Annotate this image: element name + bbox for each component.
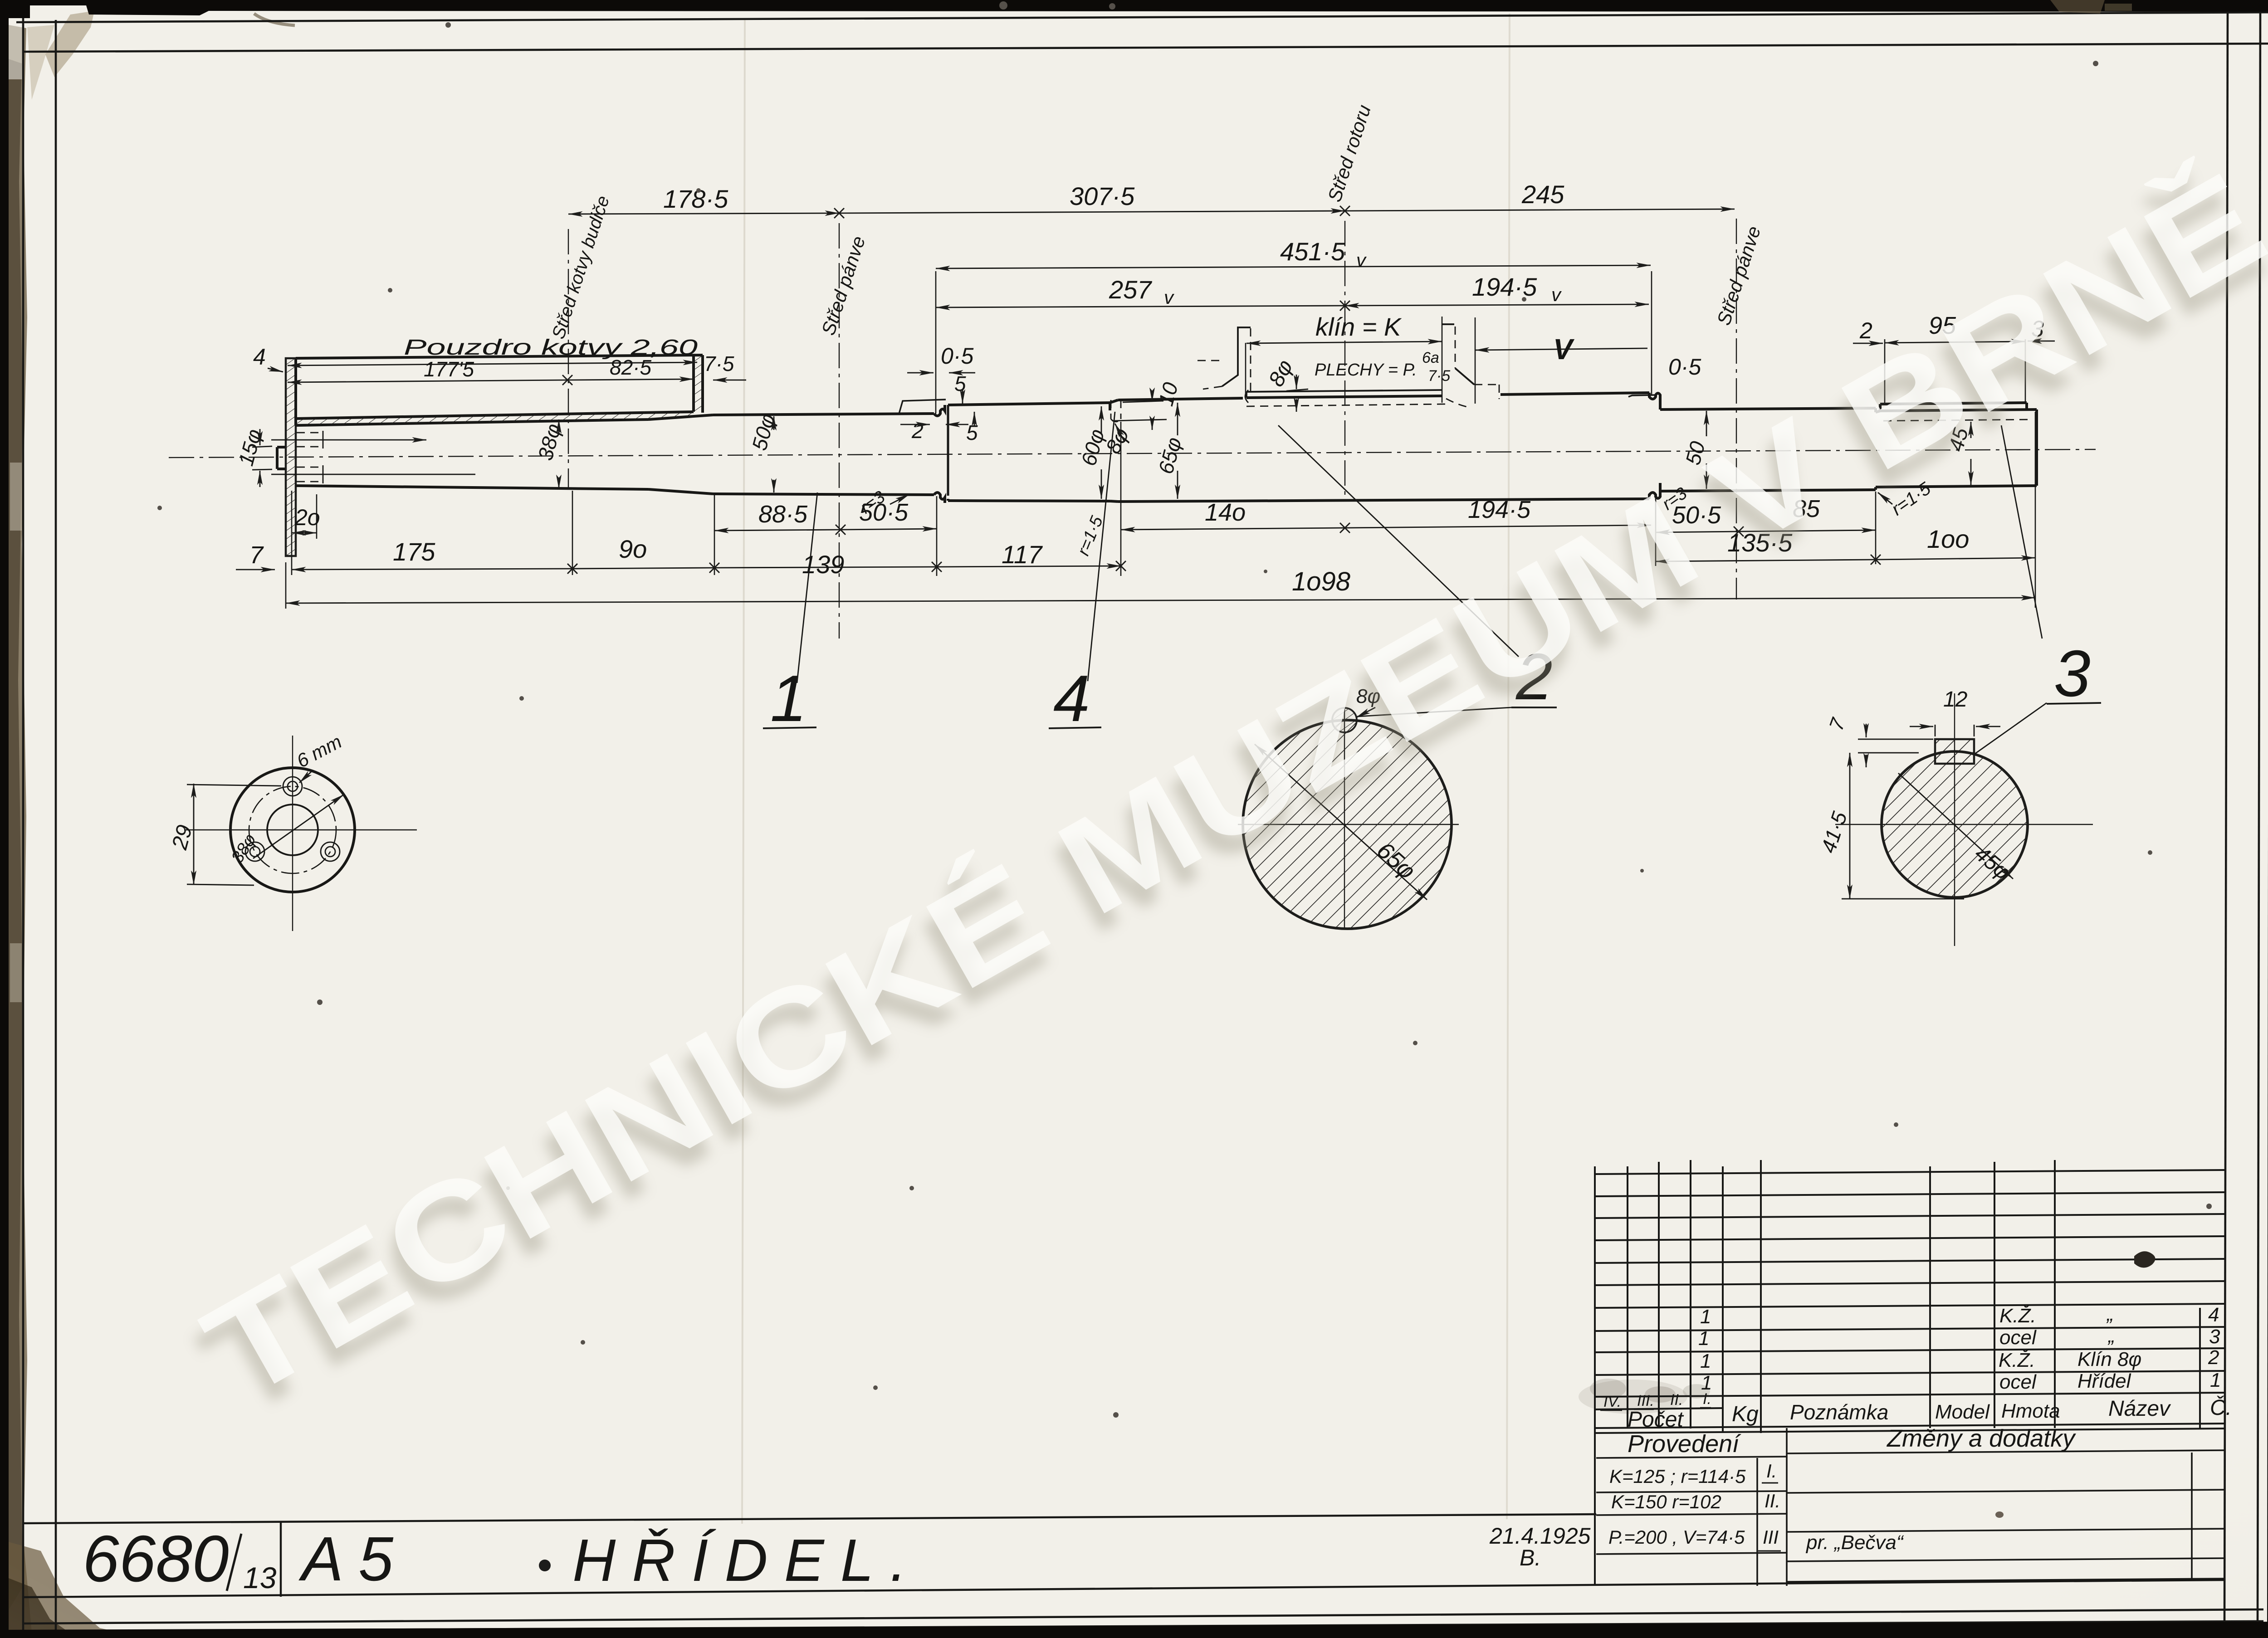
svg-text:Poznámka: Poznámka	[1790, 1400, 1888, 1424]
svg-text:194·5: 194·5	[1468, 496, 1531, 523]
svg-text:Počet: Počet	[1628, 1408, 1684, 1432]
svg-text:I.: I.	[1703, 1390, 1711, 1408]
svg-text:13: 13	[243, 1561, 277, 1594]
svg-text:1: 1	[770, 662, 807, 735]
svg-text:PLECHY = P.: PLECHY = P.	[1315, 361, 1417, 380]
svg-text:82·5: 82·5	[610, 356, 651, 379]
svg-text:1oo: 1oo	[1927, 525, 1969, 553]
svg-text:Klín 8φ: Klín 8φ	[2077, 1348, 2141, 1370]
svg-text:7: 7	[249, 541, 264, 569]
svg-text:6a: 6a	[1422, 349, 1439, 366]
svg-text:177'5: 177'5	[424, 357, 474, 381]
svg-text:194·5: 194·5	[1472, 273, 1537, 301]
svg-text:1: 1	[1700, 1306, 1711, 1328]
svg-text:4: 4	[2208, 1304, 2219, 1326]
svg-text:451·5: 451·5	[1280, 237, 1345, 266]
svg-text:88·5: 88·5	[758, 501, 808, 528]
svg-text:2: 2	[2208, 1346, 2219, 1369]
svg-text:5: 5	[954, 372, 966, 395]
svg-text:„: „	[2107, 1325, 2115, 1347]
svg-text:Hřídel: Hřídel	[2077, 1370, 2131, 1392]
svg-text:ocel: ocel	[1999, 1371, 2037, 1393]
svg-text:117: 117	[1002, 540, 1043, 569]
svg-text:Hmota: Hmota	[2001, 1400, 2060, 1422]
svg-text:K=125 ; r=114·5: K=125 ; r=114·5	[1609, 1466, 1746, 1487]
svg-text:K.Ž.: K.Ž.	[1999, 1349, 2035, 1371]
svg-text:v: v	[1551, 284, 1562, 305]
svg-text:307·5: 307·5	[1070, 182, 1135, 210]
svg-text:0·5: 0·5	[1668, 354, 1701, 380]
svg-text:klín = K: klín = K	[1315, 312, 1402, 341]
svg-text:3: 3	[2054, 637, 2091, 710]
svg-text:II.: II.	[1765, 1490, 1780, 1511]
svg-text:12: 12	[1943, 687, 1967, 712]
svg-text:II.: II.	[1670, 1391, 1683, 1409]
svg-text:v: v	[1164, 287, 1175, 308]
svg-text:0·5: 0·5	[941, 343, 973, 369]
svg-text:7·5: 7·5	[704, 352, 734, 375]
svg-text:2: 2	[911, 419, 924, 443]
svg-text:9o: 9o	[619, 535, 647, 563]
svg-text:1o98: 1o98	[1292, 567, 1350, 596]
svg-text:4: 4	[253, 344, 266, 370]
svg-text:3: 3	[2209, 1326, 2220, 1348]
svg-text:ocel: ocel	[1999, 1326, 2037, 1349]
svg-text:HŘÍDEL.: HŘÍDEL.	[572, 1527, 923, 1594]
svg-text:A 5: A 5	[298, 1524, 394, 1594]
svg-text:Název: Název	[2108, 1397, 2171, 1421]
svg-text:175: 175	[393, 537, 435, 566]
svg-text:Kg: Kg	[1732, 1402, 1759, 1426]
svg-text:K.Ž.: K.Ž.	[1999, 1305, 2036, 1327]
svg-text:2o: 2o	[294, 505, 320, 530]
svg-text:Model: Model	[1935, 1401, 1990, 1423]
svg-text:4: 4	[1053, 662, 1090, 735]
svg-text:245: 245	[1521, 180, 1564, 209]
svg-text:1: 1	[1698, 1327, 1709, 1350]
svg-text:7·5: 7·5	[1428, 367, 1450, 385]
svg-text:pr. „Bečva“: pr. „Bečva“	[1805, 1531, 1904, 1554]
svg-text:III.: III.	[1637, 1392, 1654, 1409]
svg-text:6680: 6680	[83, 1522, 229, 1595]
svg-text:P.=200 , V=74·5: P.=200 , V=74·5	[1608, 1526, 1745, 1548]
svg-text:III: III	[1763, 1526, 1779, 1548]
svg-text:14o: 14o	[1205, 499, 1246, 526]
svg-text:178·5: 178·5	[663, 185, 728, 213]
svg-text:257: 257	[1109, 275, 1152, 304]
svg-text:IV.: IV.	[1603, 1393, 1621, 1410]
svg-text:B.: B.	[1520, 1545, 1541, 1570]
svg-text:Pouzdro kotvy 2,60: Pouzdro kotvy 2,60	[404, 336, 698, 360]
svg-text:1: 1	[2210, 1369, 2221, 1391]
svg-text:1: 1	[1700, 1350, 1711, 1372]
svg-text:„: „	[2106, 1303, 2114, 1325]
svg-text:I.: I.	[1766, 1460, 1777, 1482]
svg-text:v: v	[1356, 249, 1367, 271]
svg-text:K=150 r=102: K=150 r=102	[1611, 1491, 1721, 1512]
svg-text:Změny a dodatky: Změny a dodatky	[1886, 1425, 2076, 1452]
svg-text:Č.: Č.	[2210, 1395, 2232, 1420]
svg-text:Provedení: Provedení	[1628, 1430, 1741, 1458]
